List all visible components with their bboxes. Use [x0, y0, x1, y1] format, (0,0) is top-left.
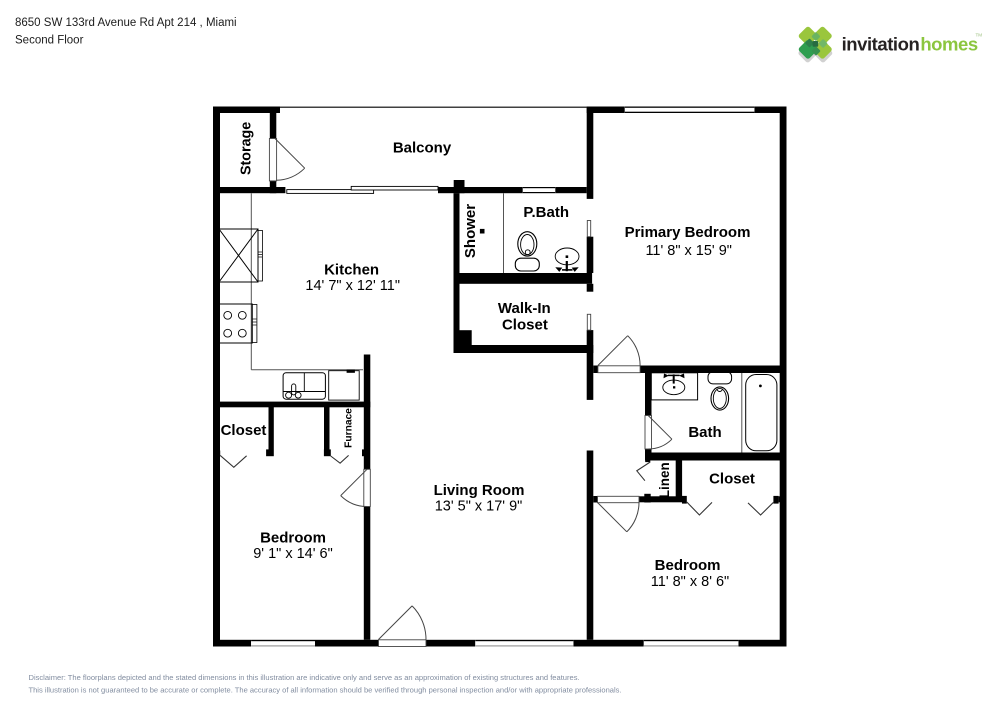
- svg-text:11' 8" x 8' 6": 11' 8" x 8' 6": [651, 574, 729, 590]
- svg-text:Disclaimer: The floorplans dep: Disclaimer: The floorplans depicted and …: [29, 673, 580, 682]
- svg-text:Primary Bedroom: Primary Bedroom: [625, 224, 751, 241]
- svg-text:P.Bath: P.Bath: [523, 204, 569, 221]
- svg-text:8650 SW 133rd Avenue Rd Apt 21: 8650 SW 133rd Avenue Rd Apt 214 , Miami: [15, 17, 237, 29]
- svg-text:TM: TM: [976, 33, 983, 38]
- svg-text:Bedroom: Bedroom: [260, 529, 326, 546]
- svg-text:Bath: Bath: [688, 424, 721, 441]
- svg-text:Walk-In: Walk-In: [498, 300, 551, 317]
- svg-text:Bedroom: Bedroom: [655, 557, 721, 574]
- svg-text:Closet: Closet: [502, 316, 548, 333]
- svg-text:This illustration is not guara: This illustration is not guaranteed to b…: [29, 686, 622, 695]
- svg-text:Balcony: Balcony: [393, 139, 452, 156]
- svg-text:invitationhomes: invitationhomes: [842, 34, 978, 55]
- svg-text:14' 7" x 12' 11": 14' 7" x 12' 11": [305, 278, 400, 294]
- svg-text:Furnace: Furnace: [343, 408, 354, 448]
- svg-text:13' 5" x 17' 9": 13' 5" x 17' 9": [435, 498, 523, 514]
- svg-text:Storage: Storage: [238, 122, 254, 175]
- svg-text:Shower: Shower: [462, 204, 479, 258]
- svg-text:Kitchen: Kitchen: [324, 262, 379, 279]
- svg-text:Linen: Linen: [657, 462, 672, 498]
- svg-text:11' 8" x 15' 9": 11' 8" x 15' 9": [645, 243, 732, 259]
- svg-text:Second Floor: Second Floor: [15, 35, 84, 47]
- svg-text:Closet: Closet: [709, 470, 755, 487]
- svg-text:Living Room: Living Room: [434, 482, 525, 499]
- svg-text:9' 1" x 14' 6": 9' 1" x 14' 6": [253, 546, 333, 562]
- svg-text:Closet: Closet: [221, 422, 267, 439]
